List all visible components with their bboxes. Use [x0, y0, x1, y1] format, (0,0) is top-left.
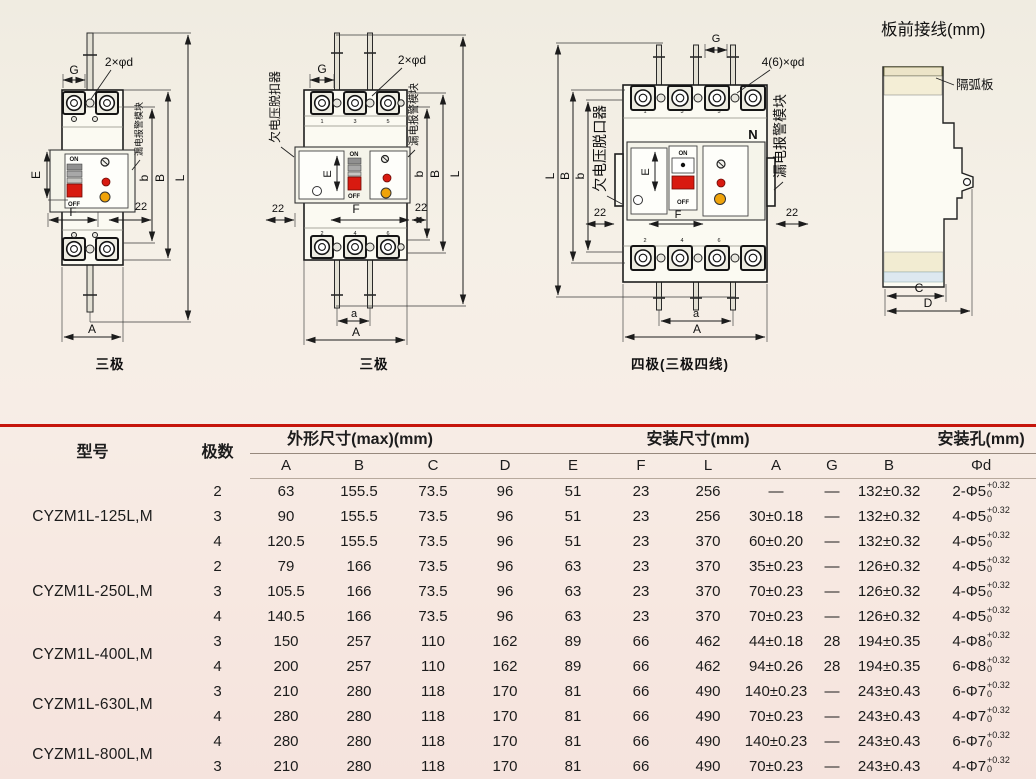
dim-f-cell: 66 — [606, 629, 676, 654]
dim-label-l: L — [448, 170, 462, 177]
poles-cell: 2 — [185, 554, 250, 579]
figure2-caption: 三极 — [334, 353, 414, 373]
dim-f-cell: 66 — [606, 679, 676, 704]
dim-label-b-cap: B — [558, 172, 572, 180]
dim-c-cell: 118 — [396, 704, 470, 729]
mount-g-cell: — — [812, 579, 852, 604]
dim-d-cell: 162 — [470, 654, 540, 679]
mount-b-cell: 243±0.43 — [852, 704, 926, 729]
mount-b-cell: 132±0.32 — [852, 479, 926, 505]
hole-tolerance: +0.32 0 — [987, 631, 1010, 648]
hole-spec: 4-Φ8 — [952, 633, 986, 650]
dim-l-cell: 490 — [676, 679, 740, 704]
dim-label-22-left: 22 — [594, 207, 606, 219]
dim-a-cell: 90 — [250, 504, 322, 529]
header-poles: 极数 — [185, 427, 250, 479]
dim-label-a-cap: A — [88, 322, 96, 336]
dim-a-cell: 79 — [250, 554, 322, 579]
tolerance-lower: 0 — [987, 565, 992, 574]
dim-a-cell: 63 — [250, 479, 322, 505]
hole-spec: 4-Φ5 — [952, 583, 986, 600]
pole-number: 6 — [386, 231, 389, 237]
red-indicator — [717, 179, 725, 187]
escutcheon-panel: ON OFF — [295, 147, 410, 203]
col-phid: Φd — [926, 454, 1036, 479]
dim-l-cell: 370 — [676, 529, 740, 554]
dim-label-e: E — [322, 170, 334, 177]
hole-tolerance: +0.32 0 — [987, 506, 1010, 523]
poles-cell: 3 — [185, 629, 250, 654]
tolerance-lower: 0 — [987, 540, 992, 549]
dim-b-cell: 280 — [322, 679, 396, 704]
header-mounting-holes: 安装孔(mm) — [926, 427, 1036, 454]
tolerance-lower: 0 — [987, 640, 992, 649]
dim-label-g: G — [712, 33, 721, 45]
mount-a-cell: 35±0.23 — [740, 554, 812, 579]
dim-f-cell: 66 — [606, 654, 676, 679]
mount-a-cell: — — [740, 479, 812, 505]
hole-cell: 4-Φ5 +0.32 0 — [926, 554, 1036, 579]
hole-cell: 4-Φ5 +0.32 0 — [926, 504, 1036, 529]
dim-label-a-cap: A — [693, 322, 701, 336]
col-l: L — [676, 454, 740, 479]
dim-label-22-left: 22 — [272, 203, 284, 215]
dim-label-22-right: 22 — [786, 207, 798, 219]
mount-b-cell: 126±0.32 — [852, 554, 926, 579]
hole-cell: 4-Φ7 +0.32 0 — [926, 704, 1036, 729]
test-dot — [681, 163, 685, 167]
dim-l-cell: 370 — [676, 604, 740, 629]
dim-c-cell: 73.5 — [396, 504, 470, 529]
figure-breaker-4pole: 1 3 5 2 4 6 N ON OFF — [545, 8, 845, 354]
hole-tolerance: +0.32 0 — [987, 581, 1010, 598]
hole-spec: 2-Φ5 — [952, 483, 986, 500]
dim-f-cell: 23 — [606, 579, 676, 604]
dim-a-cell: 210 — [250, 679, 322, 704]
dim-label-22: 22 — [135, 201, 147, 213]
rocker-handle — [348, 177, 361, 190]
dim-d-cell: 96 — [470, 529, 540, 554]
poles-cell: 4 — [185, 529, 250, 554]
hole-cell: 6-Φ7 +0.32 0 — [926, 679, 1036, 704]
hole-tolerance: +0.32 0 — [987, 681, 1010, 698]
dim-b-cell: 166 — [322, 579, 396, 604]
mount-b-cell: 132±0.32 — [852, 504, 926, 529]
dim-label-c: C — [915, 281, 924, 295]
dim-f-cell: 23 — [606, 529, 676, 554]
model-cell: CYZM1L-800L,M — [0, 729, 185, 779]
mount-g-cell: — — [812, 604, 852, 629]
hole-tolerance: +0.32 0 — [987, 656, 1010, 673]
model-cell: CYZM1L-630L,M — [0, 679, 185, 729]
hole-tolerance: +0.32 0 — [987, 531, 1010, 548]
datasheet-page: ON OFF G 2×φd 漏电报警模块 E F 22 — [0, 0, 1036, 779]
poles-cell: 4 — [185, 654, 250, 679]
release-label: 欠电压脱扣器 — [267, 71, 282, 143]
mount-b-cell: 194±0.35 — [852, 629, 926, 654]
neutral-pole-label: N — [748, 127, 757, 142]
dim-e-cell: 89 — [540, 654, 606, 679]
escutcheon-panel: ON OFF — [627, 142, 765, 220]
dim-label-b-small: b — [137, 174, 151, 181]
dim-d-cell: 96 — [470, 554, 540, 579]
pole-number: 3 — [353, 119, 356, 125]
dim-a-cell: 280 — [250, 704, 322, 729]
pole-number: 4 — [680, 238, 683, 244]
table-row: CYZM1L-800L,M 4 280 280 118 170 81 66 49… — [0, 729, 1036, 754]
dim-d-cell: 162 — [470, 629, 540, 654]
col-e: E — [540, 454, 606, 479]
mount-a-cell: 70±0.23 — [740, 579, 812, 604]
dim-f-cell: 23 — [606, 479, 676, 505]
hole-spec: 6-Φ8 — [952, 658, 986, 675]
hole-tolerance: +0.32 0 — [987, 556, 1010, 573]
poles-cell: 3 — [185, 754, 250, 779]
poles-cell: 2 — [185, 479, 250, 505]
model-cell: CYZM1L-125L,M — [0, 479, 185, 555]
mount-g-cell: — — [812, 504, 852, 529]
dim-e-cell: 63 — [540, 604, 606, 629]
on-label: ON — [70, 157, 79, 163]
off-label: OFF — [677, 200, 689, 206]
dim-label-d: D — [924, 296, 933, 310]
amber-button — [381, 188, 391, 198]
mount-a-cell: 140±0.23 — [740, 729, 812, 754]
pole-number: 4 — [353, 231, 356, 237]
hole-cell: 6-Φ7 +0.32 0 — [926, 729, 1036, 754]
dim-c-cell: 73.5 — [396, 479, 470, 505]
mount-b-cell: 243±0.43 — [852, 754, 926, 779]
tolerance-lower: 0 — [987, 590, 992, 599]
poles-cell: 3 — [185, 679, 250, 704]
poles-cell: 3 — [185, 579, 250, 604]
dim-l-cell: 490 — [676, 704, 740, 729]
module-label: 漏电报警模块 — [772, 94, 788, 178]
module-label: 漏电报警模块 — [133, 102, 144, 156]
dim-a-cell: 140.5 — [250, 604, 322, 629]
dim-c-cell: 73.5 — [396, 529, 470, 554]
dim-b-cell: 166 — [322, 554, 396, 579]
mount-g-cell: — — [812, 479, 852, 505]
escutcheon-panel: ON OFF — [50, 150, 135, 212]
figure-breaker-3pole: 1 3 5 2 4 6 ON OFF 欠电压脱扣 — [252, 8, 492, 354]
mount-a-cell: 70±0.23 — [740, 604, 812, 629]
dim-l-cell: 462 — [676, 654, 740, 679]
col-f: F — [606, 454, 676, 479]
dim-e-cell: 81 — [540, 679, 606, 704]
tolerance-lower: 0 — [987, 740, 992, 749]
table-row: CYZM1L-250L,M 2 79 166 73.5 96 63 23 370… — [0, 554, 1036, 579]
mount-b-cell: 132±0.32 — [852, 529, 926, 554]
dim-c-cell: 110 — [396, 654, 470, 679]
col-c: C — [396, 454, 470, 479]
mount-g-cell: — — [812, 729, 852, 754]
hole-spec: 4-Φ5 — [952, 558, 986, 575]
hole-cell: 2-Φ5 +0.32 0 — [926, 479, 1036, 505]
dim-a-cell: 200 — [250, 654, 322, 679]
hole-cell: 4-Φ5 +0.32 0 — [926, 529, 1036, 554]
poles-cell: 4 — [185, 604, 250, 629]
poles-cell: 4 — [185, 729, 250, 754]
mount-a-cell: 70±0.23 — [740, 754, 812, 779]
dim-label-f: F — [675, 209, 682, 221]
dim-b-cell: 257 — [322, 629, 396, 654]
spec-table-body: CYZM1L-125L,M 2 63 155.5 73.5 96 51 23 2… — [0, 479, 1036, 779]
table-row: CYZM1L-125L,M 2 63 155.5 73.5 96 51 23 2… — [0, 479, 1036, 505]
mount-g-cell: 28 — [812, 629, 852, 654]
table-row: CYZM1L-630L,M 3 210 280 118 170 81 66 49… — [0, 679, 1036, 704]
dim-a-cell: 150 — [250, 629, 322, 654]
dim-label-f: F — [352, 202, 359, 216]
dim-d-cell: 96 — [470, 479, 540, 505]
mount-b-cell: 126±0.32 — [852, 604, 926, 629]
dim-c-cell: 110 — [396, 629, 470, 654]
rocker-stripe — [67, 164, 82, 170]
on-label: ON — [679, 151, 688, 157]
figure-breaker-2pole: ON OFF G 2×φd 漏电报警模块 E F 22 — [28, 8, 238, 354]
dim-d-cell: 170 — [470, 679, 540, 704]
dim-d-cell: 96 — [470, 504, 540, 529]
dim-b-cell: 155.5 — [322, 504, 396, 529]
dim-label-g: G — [69, 63, 78, 77]
mount-b-cell: 194±0.35 — [852, 654, 926, 679]
mount-a-cell: 60±0.20 — [740, 529, 812, 554]
table-row: CYZM1L-400L,M 3 150 257 110 162 89 66 46… — [0, 629, 1036, 654]
hole-tolerance: +0.32 0 — [987, 756, 1010, 773]
dim-label-e: E — [29, 171, 43, 179]
pole-number: 5 — [717, 109, 720, 115]
dim-e-cell: 63 — [540, 554, 606, 579]
dim-label-l: L — [545, 172, 557, 179]
dim-d-cell: 170 — [470, 704, 540, 729]
hole-cell: 6-Φ8 +0.32 0 — [926, 654, 1036, 679]
pole-number: 2 — [643, 238, 646, 244]
arc-plate-label: 隔弧板 — [956, 78, 994, 92]
rocker-handle — [672, 176, 694, 189]
dim-b-cell: 155.5 — [322, 529, 396, 554]
dim-a-cell: 280 — [250, 729, 322, 754]
dim-label-g: G — [317, 62, 326, 76]
hole-spec: 6-Φ7 — [952, 733, 986, 750]
dim-a-cell: 105.5 — [250, 579, 322, 604]
figure3-caption: 四极(三极四线) — [600, 353, 760, 373]
hole-tolerance: +0.32 0 — [987, 731, 1010, 748]
mount-g-cell: — — [812, 704, 852, 729]
dim-e-cell: 81 — [540, 704, 606, 729]
arc-plate-band — [884, 67, 942, 76]
dim-e-cell: 51 — [540, 529, 606, 554]
dim-e-cell: 81 — [540, 754, 606, 779]
hole-spec: 4-Φ5 — [952, 533, 986, 550]
tolerance-lower: 0 — [987, 715, 992, 724]
dim-e-cell: 51 — [540, 504, 606, 529]
panel-hole — [634, 196, 643, 205]
pole-number: 3 — [680, 109, 683, 115]
dim-d-cell: 96 — [470, 579, 540, 604]
left-side-tab — [615, 154, 623, 206]
dimension-spec-table: 型号 极数 外形尺寸(max)(mm) 安装尺寸(mm) 安装孔(mm) A B… — [0, 427, 1036, 779]
dim-f-cell: 66 — [606, 754, 676, 779]
col-a: A — [250, 454, 322, 479]
dim-b-cell: 155.5 — [322, 479, 396, 505]
dim-l-cell: 490 — [676, 754, 740, 779]
dim-c-cell: 118 — [396, 729, 470, 754]
mount-a-cell: 94±0.26 — [740, 654, 812, 679]
amber-button — [715, 194, 726, 205]
pole-number: 1 — [643, 109, 646, 115]
dim-l-cell: 370 — [676, 554, 740, 579]
tolerance-lower: 0 — [987, 490, 992, 499]
header-model: 型号 — [0, 427, 185, 479]
dim-d-cell: 170 — [470, 729, 540, 754]
hole-tolerance: +0.32 0 — [987, 481, 1010, 498]
dim-a-cell: 120.5 — [250, 529, 322, 554]
off-label: OFF — [348, 194, 360, 200]
hole-spec: 4-Φ7 — [952, 758, 986, 775]
holes-label: 2×φd — [398, 53, 426, 67]
holes-label: 4(6)×φd — [762, 55, 805, 69]
amber-button — [100, 192, 110, 202]
pole-number: 1 — [320, 119, 323, 125]
dim-b-cell: 280 — [322, 704, 396, 729]
poles-cell: 4 — [185, 704, 250, 729]
side-profile-outline — [883, 67, 973, 287]
dim-c-cell: 118 — [396, 679, 470, 704]
hole-cell: 4-Φ5 +0.32 0 — [926, 604, 1036, 629]
hole-cell: 4-Φ5 +0.32 0 — [926, 579, 1036, 604]
dim-e-cell: 89 — [540, 629, 606, 654]
dim-label-f: F — [69, 205, 76, 219]
mount-a-cell: 140±0.23 — [740, 679, 812, 704]
mount-g-cell: — — [812, 679, 852, 704]
hole-cell: 4-Φ7 +0.32 0 — [926, 754, 1036, 779]
dim-e-cell: 51 — [540, 479, 606, 505]
bottom-terminals: 2 4 6 — [311, 231, 404, 258]
pole-number: 6 — [717, 238, 720, 244]
mount-b-cell: 243±0.43 — [852, 679, 926, 704]
dim-label-a-small: a — [351, 308, 358, 320]
dim-label-22-right: 22 — [415, 202, 427, 214]
hole-cell: 4-Φ8 +0.32 0 — [926, 629, 1036, 654]
col-d: D — [470, 454, 540, 479]
dim-label-l: L — [173, 174, 187, 181]
mount-a-cell: 44±0.18 — [740, 629, 812, 654]
tolerance-lower: 0 — [987, 765, 992, 774]
dim-c-cell: 118 — [396, 754, 470, 779]
mount-a-cell: 30±0.18 — [740, 504, 812, 529]
tolerance-lower: 0 — [987, 615, 992, 624]
dim-b-cell: 257 — [322, 654, 396, 679]
dim-l-cell: 256 — [676, 479, 740, 505]
dim-c-cell: 73.5 — [396, 579, 470, 604]
mount-g-cell: — — [812, 754, 852, 779]
dim-c-cell: 73.5 — [396, 604, 470, 629]
dim-d-cell: 96 — [470, 604, 540, 629]
dim-b-cell: 280 — [322, 729, 396, 754]
col-mount-a: A — [740, 454, 812, 479]
dim-l-cell: 490 — [676, 729, 740, 754]
dim-label-a-small: a — [693, 308, 700, 320]
dim-l-cell: 370 — [676, 579, 740, 604]
release-label: 欠电压脱口器 — [592, 105, 609, 192]
dim-label-a-cap: A — [352, 325, 360, 339]
mount-b-cell: 126±0.32 — [852, 579, 926, 604]
figure-side-profile: 板前接线(mm) 隔弧板 C D — [862, 8, 1036, 354]
figure1-caption: 三极 — [70, 353, 150, 373]
dim-e-cell: 81 — [540, 729, 606, 754]
on-label: ON — [350, 152, 359, 158]
hole-spec: 4-Φ5 — [952, 508, 986, 525]
tolerance-lower: 0 — [987, 690, 992, 699]
col-b: B — [322, 454, 396, 479]
mount-g-cell: — — [812, 529, 852, 554]
mount-a-cell: 70±0.23 — [740, 704, 812, 729]
dim-label-b-cap: B — [153, 174, 167, 182]
pole-number: 5 — [386, 119, 389, 125]
header-outline-dims: 外形尺寸(max)(mm) — [250, 427, 470, 454]
mount-b-cell: 243±0.43 — [852, 729, 926, 754]
red-indicator — [383, 174, 391, 182]
rocker-handle — [67, 184, 82, 197]
dim-label-b-cap: B — [428, 170, 442, 178]
dim-c-cell: 73.5 — [396, 554, 470, 579]
dim-label-e: E — [640, 168, 652, 175]
dim-e-cell: 63 — [540, 579, 606, 604]
dim-a-cell: 210 — [250, 754, 322, 779]
mount-g-cell: 28 — [812, 654, 852, 679]
tolerance-lower: 0 — [987, 515, 992, 524]
side-view-title: 板前接线(mm) — [881, 20, 985, 39]
dim-f-cell: 66 — [606, 729, 676, 754]
dim-f-cell: 66 — [606, 704, 676, 729]
mount-g-cell: — — [812, 554, 852, 579]
dim-b-cell: 280 — [322, 754, 396, 779]
holes-label: 2×φd — [105, 55, 133, 69]
hole-spec: 4-Φ5 — [952, 608, 986, 625]
pole-number: 2 — [320, 231, 323, 237]
dim-l-cell: 462 — [676, 629, 740, 654]
model-cell: CYZM1L-250L,M — [0, 554, 185, 629]
dim-label-b-small: b — [573, 172, 587, 179]
dim-f-cell: 23 — [606, 604, 676, 629]
tolerance-lower: 0 — [987, 665, 992, 674]
hole-tolerance: +0.32 0 — [987, 606, 1010, 623]
hole-spec: 6-Φ7 — [952, 683, 986, 700]
dim-f-cell: 23 — [606, 554, 676, 579]
col-g: G — [812, 454, 852, 479]
poles-cell: 3 — [185, 504, 250, 529]
hole-spec: 4-Φ7 — [952, 708, 986, 725]
red-indicator — [102, 178, 110, 186]
handle-pivot — [964, 179, 971, 186]
dim-b-cell: 166 — [322, 604, 396, 629]
dim-f-cell: 23 — [606, 504, 676, 529]
dim-label-b-small: b — [412, 170, 426, 177]
hole-tolerance: +0.32 0 — [987, 706, 1010, 723]
module-label: 漏电报警模块 — [407, 83, 420, 146]
dim-l-cell: 256 — [676, 504, 740, 529]
header-mounting-dims: 安装尺寸(mm) — [470, 427, 926, 454]
col-mount-b: B — [852, 454, 926, 479]
dim-d-cell: 170 — [470, 754, 540, 779]
model-cell: CYZM1L-400L,M — [0, 629, 185, 679]
panel-hole — [313, 187, 322, 196]
